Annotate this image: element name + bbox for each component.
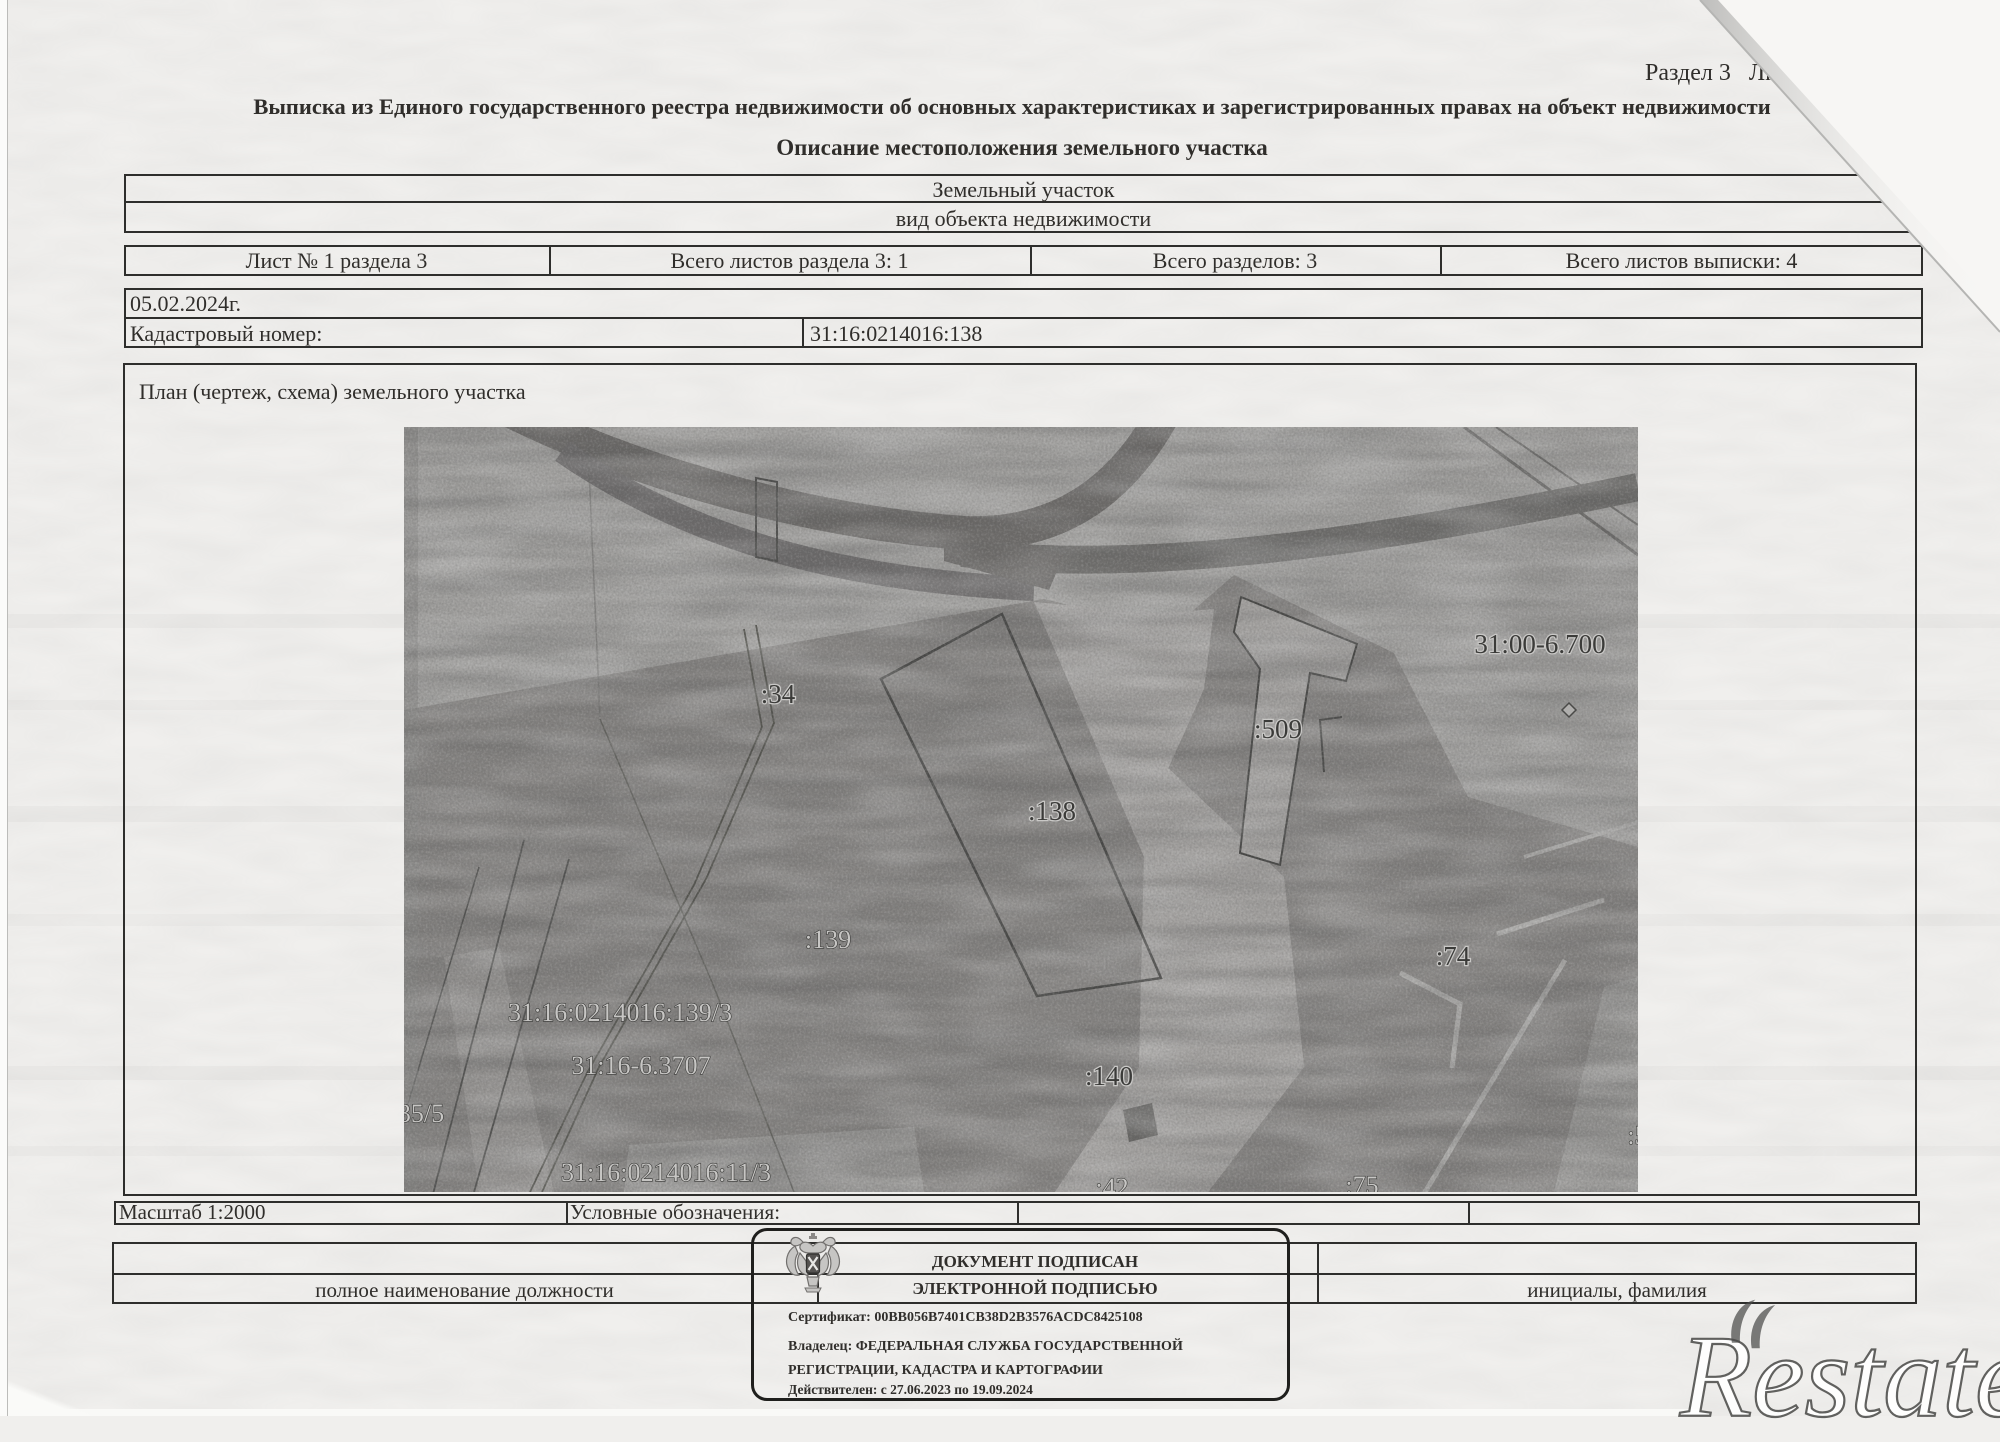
svg-text::42: :42 <box>1095 1173 1128 1192</box>
svg-text::74: :74 <box>1436 941 1471 971</box>
svg-text::140: :140 <box>1085 1061 1133 1091</box>
svg-text::75: :75 <box>1345 1171 1378 1192</box>
svg-text::138: :138 <box>1028 796 1076 826</box>
svg-text::139: :139 <box>805 925 851 954</box>
svg-text::509: :509 <box>1254 714 1302 744</box>
svg-text:31:16:0214016:11/3: 31:16:0214016:11/3 <box>561 1158 771 1187</box>
svg-text::34: :34 <box>761 679 796 709</box>
svg-text:31:16:0214016:139/3: 31:16:0214016:139/3 <box>508 998 732 1027</box>
svg-text:31:00-6.700: 31:00-6.700 <box>1474 629 1605 659</box>
svg-text:35/5: 35/5 <box>404 1099 444 1128</box>
svg-text:31:16-6.3707: 31:16-6.3707 <box>571 1051 710 1080</box>
svg-text::51: :51 <box>1627 1121 1638 1150</box>
